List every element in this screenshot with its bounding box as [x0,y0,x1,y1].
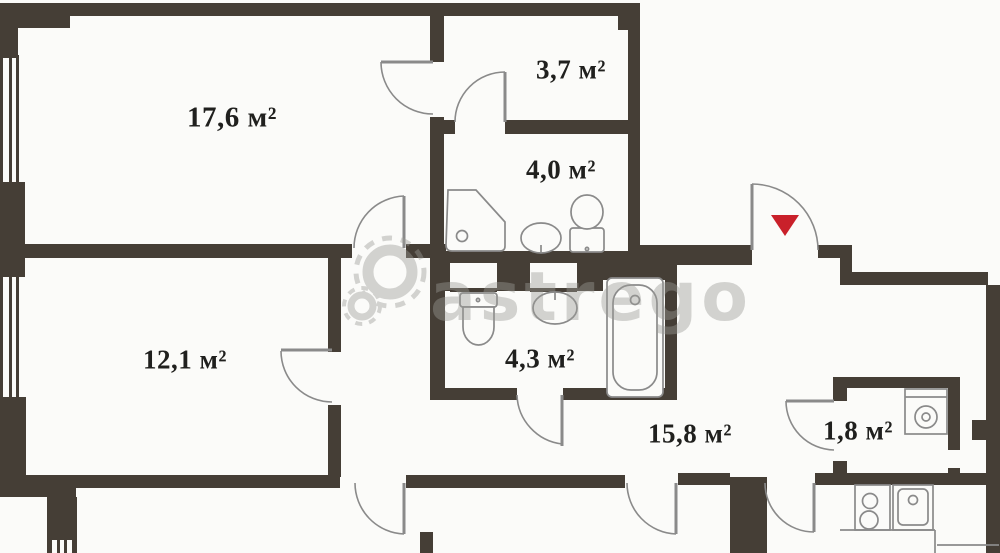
window [0,55,19,182]
wall [972,420,988,440]
door-wardrobe-bath [455,72,505,122]
floor-plan-drawing: astrego [0,0,1000,553]
door-living-wardrobe [381,62,433,114]
kitchen-counter-line [840,530,999,553]
wall [47,497,77,540]
wall [328,405,341,477]
wall [0,3,640,16]
wall [833,377,847,401]
room-area-label-bath-mid: 4,3 м² [505,344,575,375]
door-living-corridor [354,196,404,248]
washing-machine-icon [905,389,947,434]
window [47,540,77,553]
wall [430,117,444,257]
door-lower-room-left [355,483,404,534]
room-area-label-storage: 1,8 м² [823,416,893,447]
door-bath-mid [517,395,562,446]
floor-plan: astrego 17,6 м² 3,7 м² 4,0 м² 12,1 м² 4,… [0,0,1000,553]
wall [0,3,18,58]
room-area-label-bath-top: 4,0 м² [526,155,596,186]
wall [20,244,352,258]
wall [678,473,730,485]
wall [986,285,1000,553]
window [0,277,19,397]
wall [20,475,340,488]
stove-icon [855,485,890,530]
door-bedroom [281,350,332,402]
room-area-label-wardrobe: 3,7 м² [536,55,606,86]
wall [18,16,70,28]
wall [0,182,25,277]
watermark-text: astrego [430,258,752,337]
wall [430,388,517,400]
wall [328,257,341,352]
wall [948,377,960,450]
toilet-icon [570,195,604,252]
wall [730,477,767,553]
door-kitchen [765,483,814,532]
wall [430,120,455,134]
wall [833,461,847,485]
wall [406,475,625,488]
wall [505,120,640,134]
wall [430,16,444,62]
wall [840,272,988,285]
washbasin-icon [521,223,561,253]
room-area-label-bedroom: 12,1 м² [143,345,227,376]
door-lower-room-right [627,483,676,534]
wall [818,245,852,258]
room-area-label-living: 17,6 м² [187,102,277,135]
shower-cabin-icon [446,190,505,251]
wall [420,532,433,553]
wall [948,468,960,485]
room-area-label-hallway: 15,8 м² [648,419,732,450]
entrance-marker-icon [771,215,799,236]
wall [835,377,950,388]
kitchen-sink-icon [893,485,933,530]
